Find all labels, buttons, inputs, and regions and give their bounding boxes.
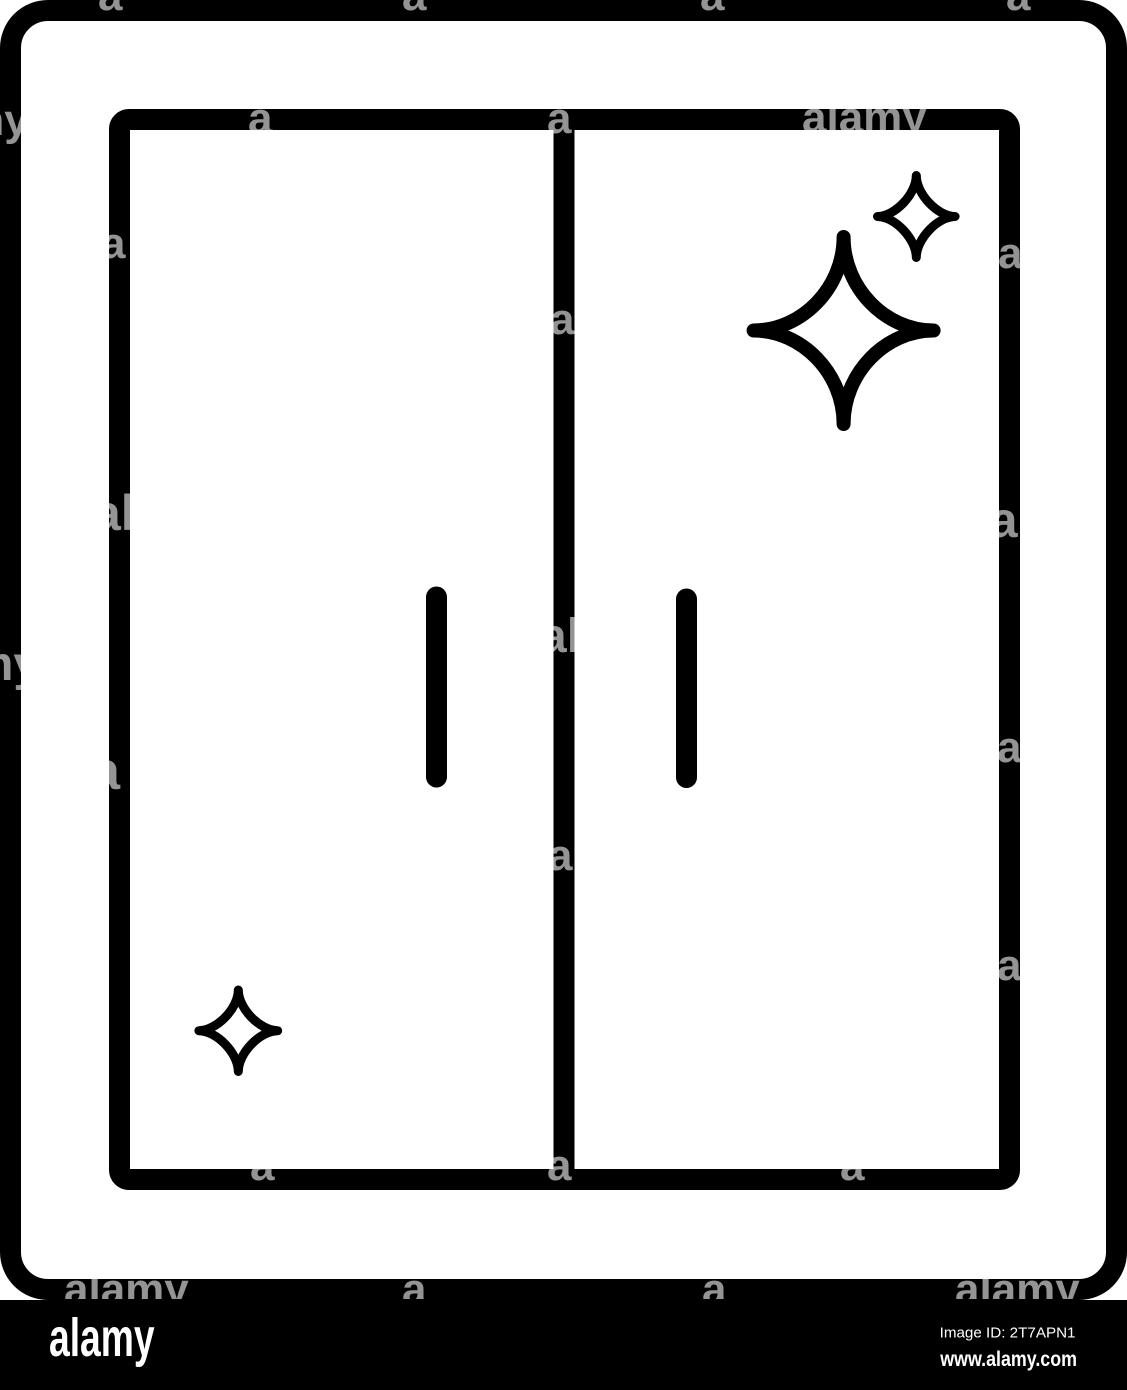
svg-text:alamy: alamy bbox=[540, 610, 676, 663]
svg-text:a: a bbox=[840, 1141, 865, 1190]
svg-text:a: a bbox=[101, 219, 126, 268]
svg-text:alamy: alamy bbox=[49, 1307, 155, 1368]
svg-text:www.alamy.com: www.alamy.com bbox=[939, 1348, 1077, 1372]
svg-text:a: a bbox=[250, 1141, 275, 1190]
svg-text:alamy: alamy bbox=[948, 492, 1090, 548]
svg-text:a: a bbox=[547, 94, 572, 143]
svg-text:a: a bbox=[997, 941, 1022, 990]
svg-text:alamy: alamy bbox=[802, 93, 927, 142]
svg-text:a: a bbox=[548, 831, 573, 880]
svg-text:alamy: alamy bbox=[0, 96, 29, 145]
svg-text:alamy: alamy bbox=[93, 485, 235, 541]
svg-text:alamy: alamy bbox=[0, 638, 40, 691]
svg-text:a: a bbox=[248, 94, 273, 143]
svg-text:a: a bbox=[402, 0, 427, 20]
svg-text:a: a bbox=[700, 0, 725, 20]
svg-text:a: a bbox=[547, 1141, 572, 1190]
svg-text:a: a bbox=[98, 0, 123, 20]
svg-text:a: a bbox=[90, 741, 121, 801]
svg-text:a: a bbox=[1006, 0, 1031, 20]
svg-text:Image ID: 2T7APN1: Image ID: 2T7APN1 bbox=[940, 1325, 1076, 1342]
svg-text:a: a bbox=[998, 229, 1023, 278]
svg-text:a: a bbox=[550, 295, 575, 344]
svg-text:a: a bbox=[997, 723, 1022, 772]
